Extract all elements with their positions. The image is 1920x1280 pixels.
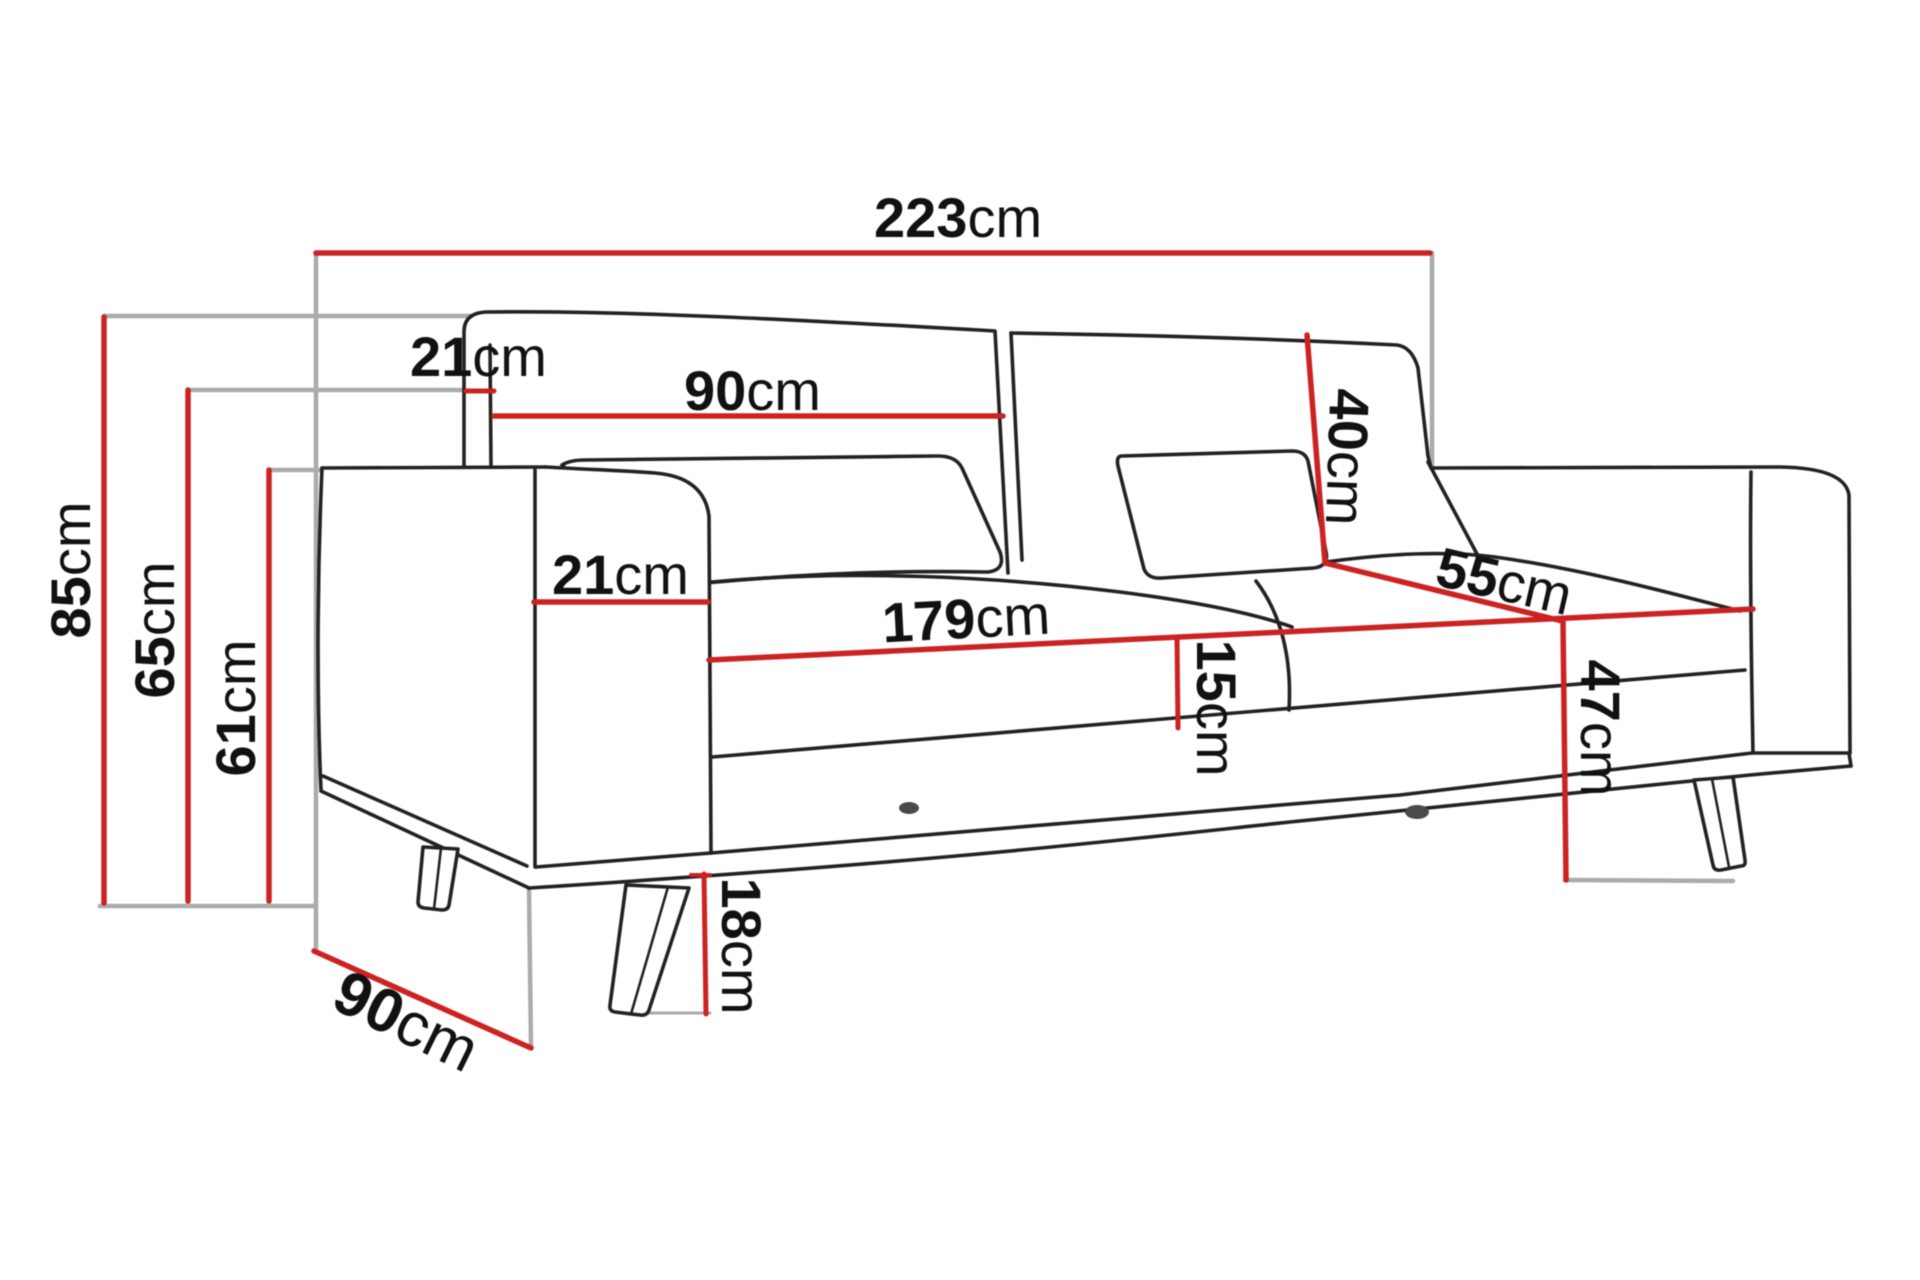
- svg-text:61cm: 61cm: [204, 640, 267, 777]
- svg-text:90cm: 90cm: [684, 359, 821, 422]
- svg-text:85cm: 85cm: [39, 502, 102, 639]
- svg-text:179cm: 179cm: [880, 583, 1051, 655]
- svg-text:47cm: 47cm: [1569, 660, 1632, 797]
- svg-text:15cm: 15cm: [1185, 640, 1248, 777]
- svg-text:18cm: 18cm: [710, 878, 773, 1015]
- svg-text:65cm: 65cm: [123, 562, 186, 699]
- svg-text:21cm: 21cm: [552, 543, 689, 606]
- svg-text:40cm: 40cm: [1314, 388, 1382, 527]
- svg-text:223cm: 223cm: [874, 186, 1042, 249]
- svg-text:21cm: 21cm: [410, 325, 547, 388]
